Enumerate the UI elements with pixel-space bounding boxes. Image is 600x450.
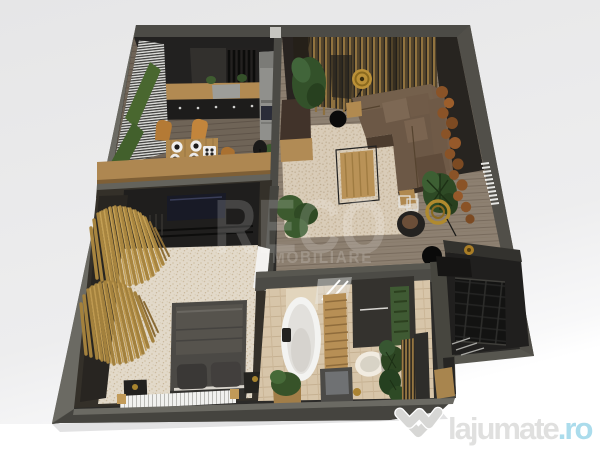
svg-text:IMOBILIARE: IMOBILIARE <box>266 247 373 267</box>
svg-text:lajumate.ro: lajumate.ro <box>448 411 592 446</box>
